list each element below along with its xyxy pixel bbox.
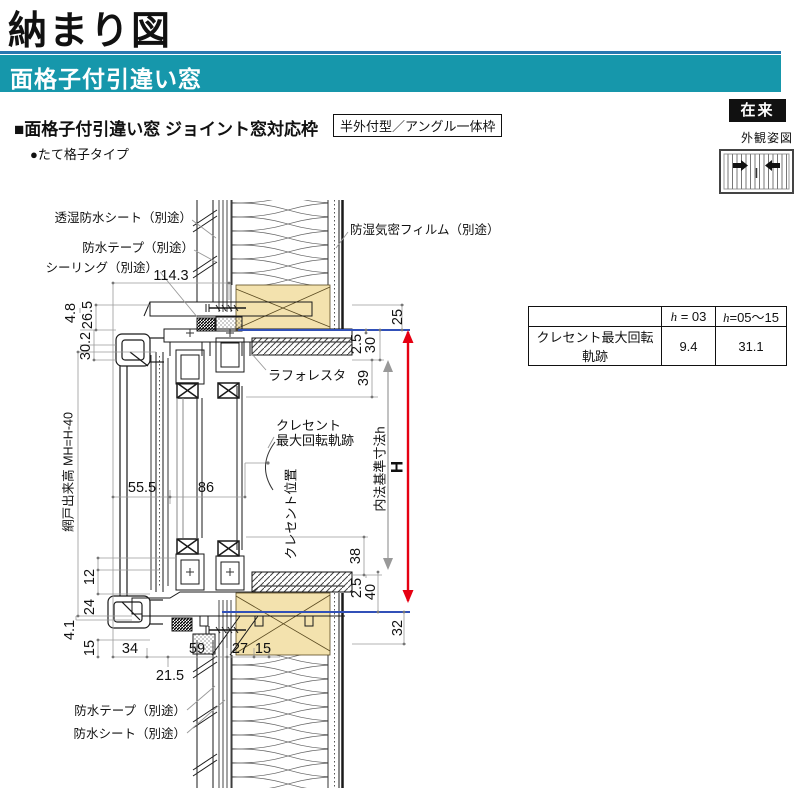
dim-26-5: 26.5 (80, 301, 96, 329)
dim-25: 25 (390, 309, 406, 325)
dim-24: 24 (82, 599, 98, 615)
dim-30: 30 (363, 337, 379, 353)
callout-interior-trim: ラフォレスタ (268, 368, 346, 383)
callout-moisture-sheet: 透湿防水シート（別途） (54, 210, 192, 225)
label-screen-height: 網戸出来高 MH=H-40 (60, 412, 75, 532)
dim-30-2: 30.2 (78, 332, 94, 360)
callout-waterproof-tape-bottom: 防水テープ（別途） (74, 703, 186, 718)
window-appearance-icon (720, 150, 793, 193)
dim-59: 59 (189, 641, 205, 657)
dim-34: 34 (122, 641, 138, 657)
callout-vapor-film: 防湿気密フィルム（別途） (350, 222, 500, 237)
dim-32: 32 (390, 620, 406, 636)
dim-114-3: 114.3 (153, 268, 188, 284)
section-drawing: 透湿防水シート（別途） 防水テープ（別途） シーリング（別途） 防湿気密フィルム… (0, 0, 800, 800)
page: { "header": { "title": "納まり図", "banner":… (0, 0, 800, 800)
label-overall-height: H (387, 461, 406, 473)
label-inner-dim: 内法基準寸法h (372, 426, 387, 511)
crescent-swing-arc (265, 442, 275, 490)
dim-40: 40 (363, 584, 379, 600)
dim-4-1: 4.1 (62, 620, 78, 640)
dim-39: 39 (356, 370, 372, 386)
dim-55-5: 55.5 (128, 480, 156, 496)
callout-sealing: シーリング（別途） (45, 260, 158, 275)
callout-crescent-line2: 最大回転軌跡 (276, 433, 354, 448)
dim-15-left: 15 (82, 640, 98, 656)
callout-waterproof-tape-top: 防水テープ（別途） (82, 240, 194, 255)
dim-12: 12 (82, 569, 98, 585)
callout-waterproof-sheet-bottom: 防水シート（別途） (73, 726, 186, 741)
dim-21-5: 21.5 (156, 668, 184, 684)
dim-27: 27 (232, 641, 248, 657)
dim-15-sill: 15 (255, 641, 271, 657)
callout-crescent-line1: クレセント (276, 418, 341, 433)
label-crescent-position: クレセント位置 (283, 468, 298, 559)
dim-86: 86 (198, 480, 214, 496)
dim-38: 38 (348, 548, 364, 564)
dim-4-8: 4.8 (63, 303, 79, 323)
